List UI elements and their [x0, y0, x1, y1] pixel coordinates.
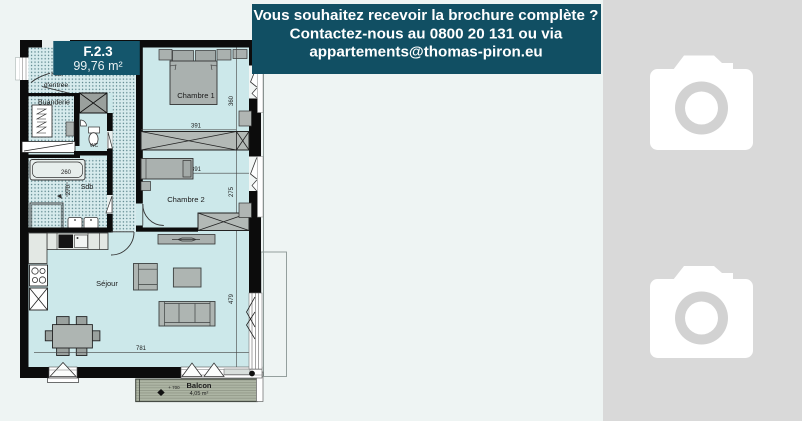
svg-text:+ 700: + 700	[168, 385, 180, 390]
svg-text:260: 260	[61, 170, 72, 176]
svg-text:Contactez-nous au 0800 20 131: Contactez-nous au 0800 20 131 ou via	[290, 25, 563, 42]
svg-text:275: 275	[229, 186, 235, 197]
svg-text:479: 479	[229, 293, 235, 304]
svg-text:d'entrée: d'entrée	[44, 82, 69, 89]
svg-text:Sdb: Sdb	[81, 184, 94, 191]
svg-text:4,05 m²: 4,05 m²	[190, 391, 209, 397]
svg-text:Séjour: Séjour	[96, 279, 118, 288]
svg-text:781: 781	[136, 346, 147, 352]
svg-text:99,76 m²: 99,76 m²	[73, 59, 122, 73]
svg-text:appartements@thomas-piron.eu: appartements@thomas-piron.eu	[309, 44, 542, 61]
svg-text:Vous souhaitez recevoir la bro: Vous souhaitez recevoir la brochure comp…	[254, 7, 599, 24]
svg-text:Chambre 1: Chambre 1	[177, 91, 215, 100]
svg-text:Balcon: Balcon	[186, 381, 211, 390]
svg-text:F.2.3: F.2.3	[83, 44, 113, 59]
svg-text:391: 391	[191, 124, 202, 130]
svg-text:360: 360	[229, 95, 235, 106]
svg-text:Chambre 2: Chambre 2	[167, 195, 205, 204]
svg-text:WC: WC	[90, 143, 99, 149]
